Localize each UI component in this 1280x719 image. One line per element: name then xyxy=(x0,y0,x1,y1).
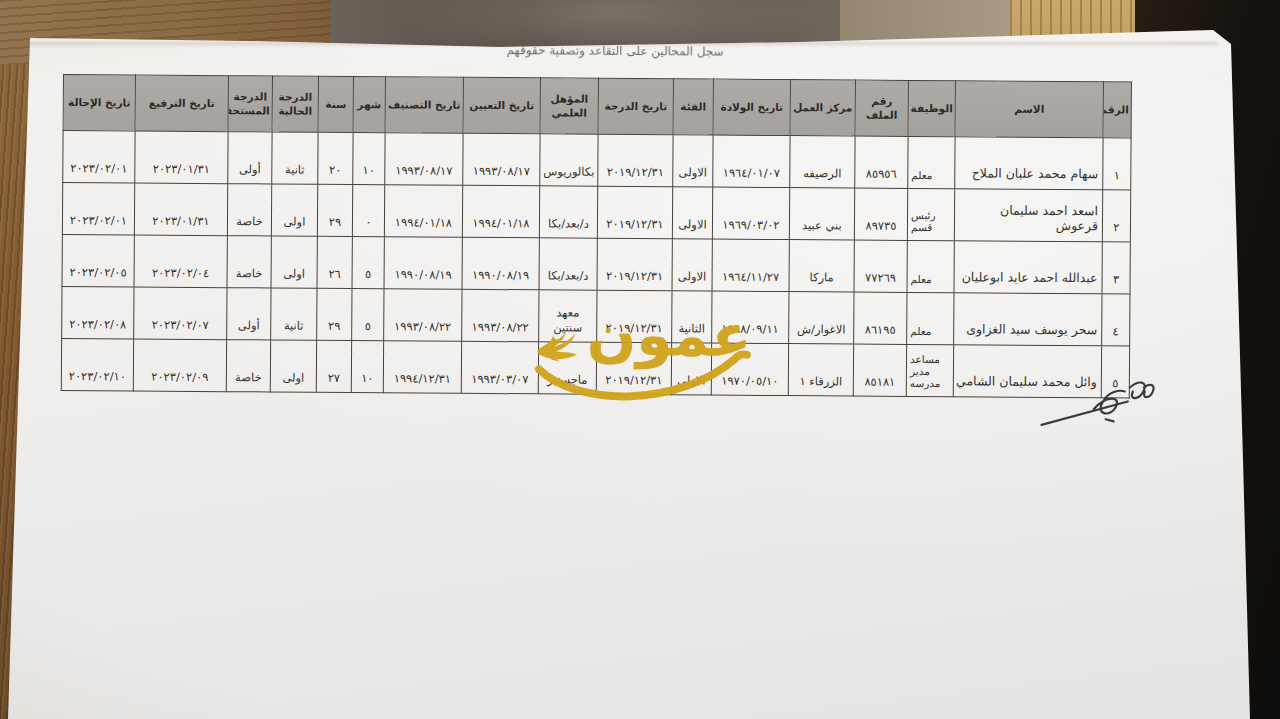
table-cell: ماركا xyxy=(789,240,854,292)
table-cell: ١٩٩٤/٠١/١٨ xyxy=(462,185,539,238)
table-cell: ٢٠١٩/١٢/٣١ xyxy=(598,134,673,187)
table-cell: ١٩٩٣/٠٨/٢٢ xyxy=(462,289,539,342)
photographed-document: سجل المحالين على التقاعد وتصفية حقوقهم ا… xyxy=(0,0,1280,719)
header-cell: الدرجة الحالية xyxy=(272,76,318,132)
table-cell: خاصة xyxy=(227,184,271,236)
table-cell: الرصيفه xyxy=(790,136,855,188)
table-cell: ٤ xyxy=(1102,294,1130,346)
table-cell: ٨٥١٨١ xyxy=(853,344,906,396)
table-cell: ١٩٩٠/٠٨/١٩ xyxy=(384,237,462,290)
table-cell: ٢٠١٩/١٢/٣١ xyxy=(597,186,672,239)
header-cell: تاريخ الدرجة xyxy=(598,78,673,135)
table-cell: ٢٠٢٣/٠١/٣١ xyxy=(135,131,228,184)
table-cell: د/بعد/بكا xyxy=(539,186,597,238)
header-cell: مركز العمل xyxy=(790,80,855,136)
table-cell: معلم xyxy=(908,136,955,188)
table-cell: ٢٠١٩/١٢/٣١ xyxy=(597,290,672,343)
table-cell: ماجستير xyxy=(538,342,596,394)
table-cell: معهد سنتين xyxy=(539,290,597,342)
table-cell: ٢٩ xyxy=(317,288,352,340)
header-cell: تاريخ الولادة xyxy=(713,79,790,136)
table-cell: معلم xyxy=(907,292,954,344)
header-cell: رقم الملف xyxy=(855,80,908,136)
table-cell: ٥ xyxy=(352,289,384,341)
table-cell: ٢٧ xyxy=(316,340,351,392)
table-cell: ٥ xyxy=(352,237,384,289)
table-cell: ٢٠٢٣/٠١/٣١ xyxy=(134,183,227,236)
table-cell: ٢٠٢٣/٠٢/٠١ xyxy=(62,183,134,236)
table-cell: ٢٠٢٣/٠٢/٠٧ xyxy=(134,287,227,340)
table-cell: عبدالله احمد عايد ابوعليان xyxy=(954,241,1102,294)
records-table: الرقمالاسمالوظيفةرقم الملفمركز العملتاري… xyxy=(61,74,1132,398)
table-cell: الاولى xyxy=(672,187,712,239)
table-cell: الاولى xyxy=(673,135,713,187)
header-cell: المؤهل العلمي xyxy=(540,78,598,134)
header-cell: الدرجة المستحقة xyxy=(228,76,272,132)
table-cell: د/بعد/بكا xyxy=(539,238,597,290)
table-cell: سهام محمد عليان الملاح xyxy=(955,137,1103,190)
table-cell: أولى xyxy=(228,132,272,184)
header-cell: تاريخ التعيين xyxy=(463,77,540,134)
table-cell: اولى xyxy=(271,236,317,288)
header-cell: شهر xyxy=(353,77,385,133)
table-cell: ١٩٦٤/٠١/٠٧ xyxy=(713,135,790,188)
table-cell: سحر يوسف سيد الغزاوى xyxy=(954,293,1102,346)
table-cell: خاصة xyxy=(227,236,271,288)
table-cell: الاغوار/ش xyxy=(789,292,854,344)
table-cell: ١٩٩٠/٠٨/١٩ xyxy=(462,237,539,290)
table-cell: ٠ xyxy=(352,185,384,237)
document-content: سجل المحالين على التقاعد وتصفية حقوقهم ا… xyxy=(0,0,1280,719)
header-cell: الفئة xyxy=(673,79,713,135)
table-cell: الاولى xyxy=(672,239,712,291)
handwritten-signature xyxy=(1036,375,1166,434)
table-cell: الاولى xyxy=(671,343,711,395)
header-cell: تاريخ الترفيع xyxy=(135,75,228,132)
table-cell: رئيس قسم xyxy=(907,188,954,240)
table-cell: ١٩٧٠/٠٥/١٠ xyxy=(711,343,788,396)
header-cell: تاريخ الإحالة xyxy=(63,75,135,132)
table-cell: ٢٩ xyxy=(317,184,352,236)
table-cell: ١٠ xyxy=(351,341,383,393)
table-cell: الزرقاء ١ xyxy=(788,344,853,396)
table-cell: اولى xyxy=(271,184,317,236)
header-cell: تاريخ التصنيف xyxy=(385,77,463,134)
table-row: ٢اسعد احمد سليمان قرعوشرئيس قسم٨٩٧٣٥بني … xyxy=(62,183,1130,242)
table-cell: ١٩٩٤/١٢/٣١ xyxy=(383,341,461,394)
table-cell: ١٠ xyxy=(353,133,385,185)
table-cell: ١٩٦٤/١١/٢٧ xyxy=(712,239,789,292)
table-cell: ١٩٩٣/٠٨/١٧ xyxy=(463,133,540,186)
table-cell: ١٩٩٣/٠٣/٠٧ xyxy=(461,341,538,394)
header-cell: الرقم xyxy=(1103,82,1131,138)
table-cell: ١٩٦٨/٠٩/١١ xyxy=(712,291,789,344)
table-cell: ٢٠٢٣/٠٢/٠٤ xyxy=(134,235,227,288)
header-cell: الوظيفة xyxy=(908,80,955,136)
table-cell: ١٩٩٣/٠٨/١٧ xyxy=(385,133,463,186)
table-cell: ١٩٩٣/٠٨/٢٢ xyxy=(384,289,462,342)
table-row: ٣عبدالله احمد عايد ابوعليانمعلم٧٧٢٦٩مارك… xyxy=(62,234,1130,293)
document-title: سجل المحالين على التقاعد وتصفية حقوقهم xyxy=(455,43,775,59)
table-cell: ثانية xyxy=(271,288,317,340)
table-cell: ٢٠٢٣/٠٢/٠٨ xyxy=(62,286,134,339)
table-cell: معلم xyxy=(907,240,954,292)
table-cell: ٢٦ xyxy=(317,236,352,288)
header-cell: الاسم xyxy=(955,81,1103,138)
table-row: ٤سحر يوسف سيد الغزاوىمعلم٨٦١٩٥الاغوار/ش١… xyxy=(62,286,1130,345)
table-cell: أولى xyxy=(227,288,271,340)
table-cell: ٢٠٢٣/٠٢/٠٥ xyxy=(62,234,134,287)
table-cell: ٢٠٢٣/٠٢/٠٩ xyxy=(133,339,226,392)
table-cell: ٢٠ xyxy=(318,132,353,184)
table-cell: ٢ xyxy=(1102,190,1130,242)
table-cell: ٢٠١٩/١٢/٣١ xyxy=(597,238,672,291)
table-cell: بني عبيد xyxy=(789,188,854,240)
table-row: ٥وائل محمد سليمان الشاميمساعد مدير مدرسه… xyxy=(61,338,1129,397)
header-row: الرقمالاسمالوظيفةرقم الملفمركز العملتاري… xyxy=(63,75,1131,138)
table-cell: ٨٩٧٣٥ xyxy=(854,188,907,240)
table-cell: ٢٠٢٣/٠٢/١٠ xyxy=(61,338,133,391)
table-cell: ثانية xyxy=(272,132,318,184)
table-cell: ١٩٩٤/٠١/١٨ xyxy=(384,185,462,238)
table-row: ١سهام محمد عليان الملاحمعلم٨٥٩٥٦الرصيفه١… xyxy=(63,131,1131,190)
table-cell: ٧٧٢٦٩ xyxy=(854,240,907,292)
table-cell: ١٩٦٩/٠٣/٠٢ xyxy=(712,187,789,240)
table-cell: ٣ xyxy=(1102,242,1130,294)
table-cell: ٢٠١٩/١٢/٣١ xyxy=(596,342,671,395)
table-cell: الثانية xyxy=(672,291,712,343)
table-cell: ٨٦١٩٥ xyxy=(854,292,907,344)
table-cell: اسعد احمد سليمان قرعوش xyxy=(954,189,1102,242)
table-cell: اولى xyxy=(270,340,316,392)
table-cell: بكالوريوس xyxy=(540,134,598,186)
table-cell: مساعد مدير مدرسه xyxy=(906,344,953,396)
header-cell: سنة xyxy=(318,76,353,132)
table-cell: ٢٠٢٣/٠٢/٠١ xyxy=(63,131,135,184)
table-cell: ١ xyxy=(1103,138,1131,190)
table-cell: ٨٥٩٥٦ xyxy=(855,136,908,188)
table-cell: خاصة xyxy=(226,340,270,392)
